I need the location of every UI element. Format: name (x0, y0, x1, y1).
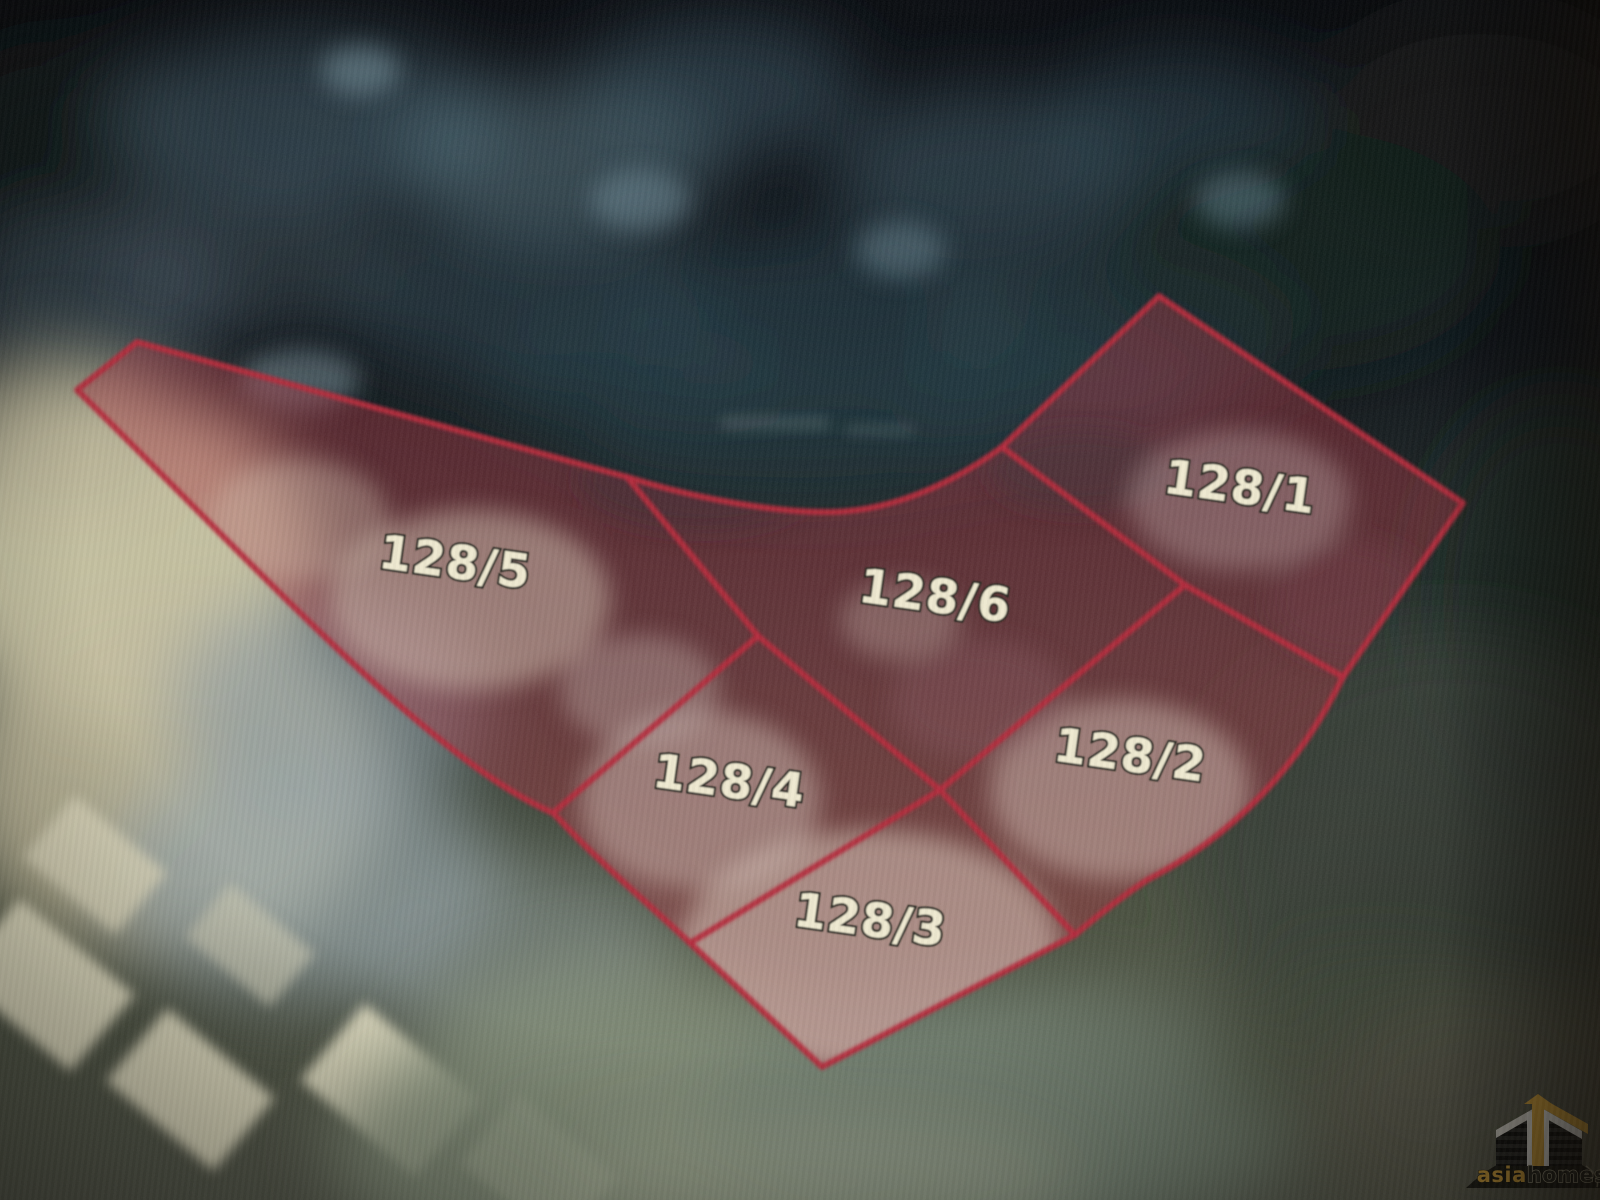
aerial-parcel-map: 128/5 128/6 128/1 128/4 128/2 128/3 asia… (0, 0, 1600, 1200)
screen-photo: 128/5 128/6 128/1 128/4 128/2 128/3 asia… (0, 0, 1600, 1200)
right-edge-shadow (0, 0, 1600, 1200)
